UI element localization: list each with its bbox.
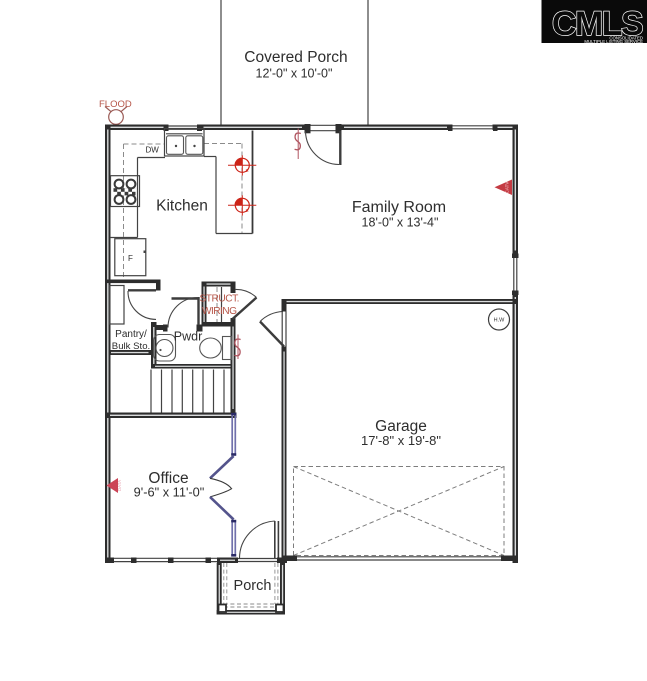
svg-text:S: S (246, 168, 249, 173)
svg-text:Pantry/: Pantry/ (115, 329, 147, 340)
svg-text:DATA: DATA (117, 480, 122, 491)
svg-text:Covered Porch: Covered Porch (244, 49, 347, 66)
svg-text:Family Room: Family Room (352, 199, 446, 216)
svg-text:Kitchen: Kitchen (156, 198, 208, 215)
svg-text:S: S (246, 208, 249, 213)
svg-text:Bulk Sto.: Bulk Sto. (112, 341, 150, 352)
svg-text:Pwdr: Pwdr (174, 330, 202, 344)
svg-text:MULTIPLE LISTING SERVICE: MULTIPLE LISTING SERVICE (584, 39, 643, 44)
svg-text:12'-0" x 10'-0": 12'-0" x 10'-0" (256, 67, 333, 81)
svg-text:FLOOD: FLOOD (99, 99, 132, 110)
svg-text:STRUCT.: STRUCT. (200, 294, 240, 305)
svg-text:Porch: Porch (234, 578, 272, 594)
svg-text:18'-0" x 13'-4": 18'-0" x 13'-4" (362, 216, 439, 230)
svg-text:DW: DW (146, 146, 160, 155)
svg-text:H.W: H.W (494, 318, 506, 324)
svg-text:17'-8" x 19'-8": 17'-8" x 19'-8" (361, 433, 441, 448)
svg-text:CATV: CATV (505, 182, 510, 194)
svg-text:F: F (128, 254, 133, 263)
svg-text:9'-6" x 11'-0": 9'-6" x 11'-0" (134, 485, 205, 500)
svg-text:WIRING: WIRING (202, 306, 237, 317)
